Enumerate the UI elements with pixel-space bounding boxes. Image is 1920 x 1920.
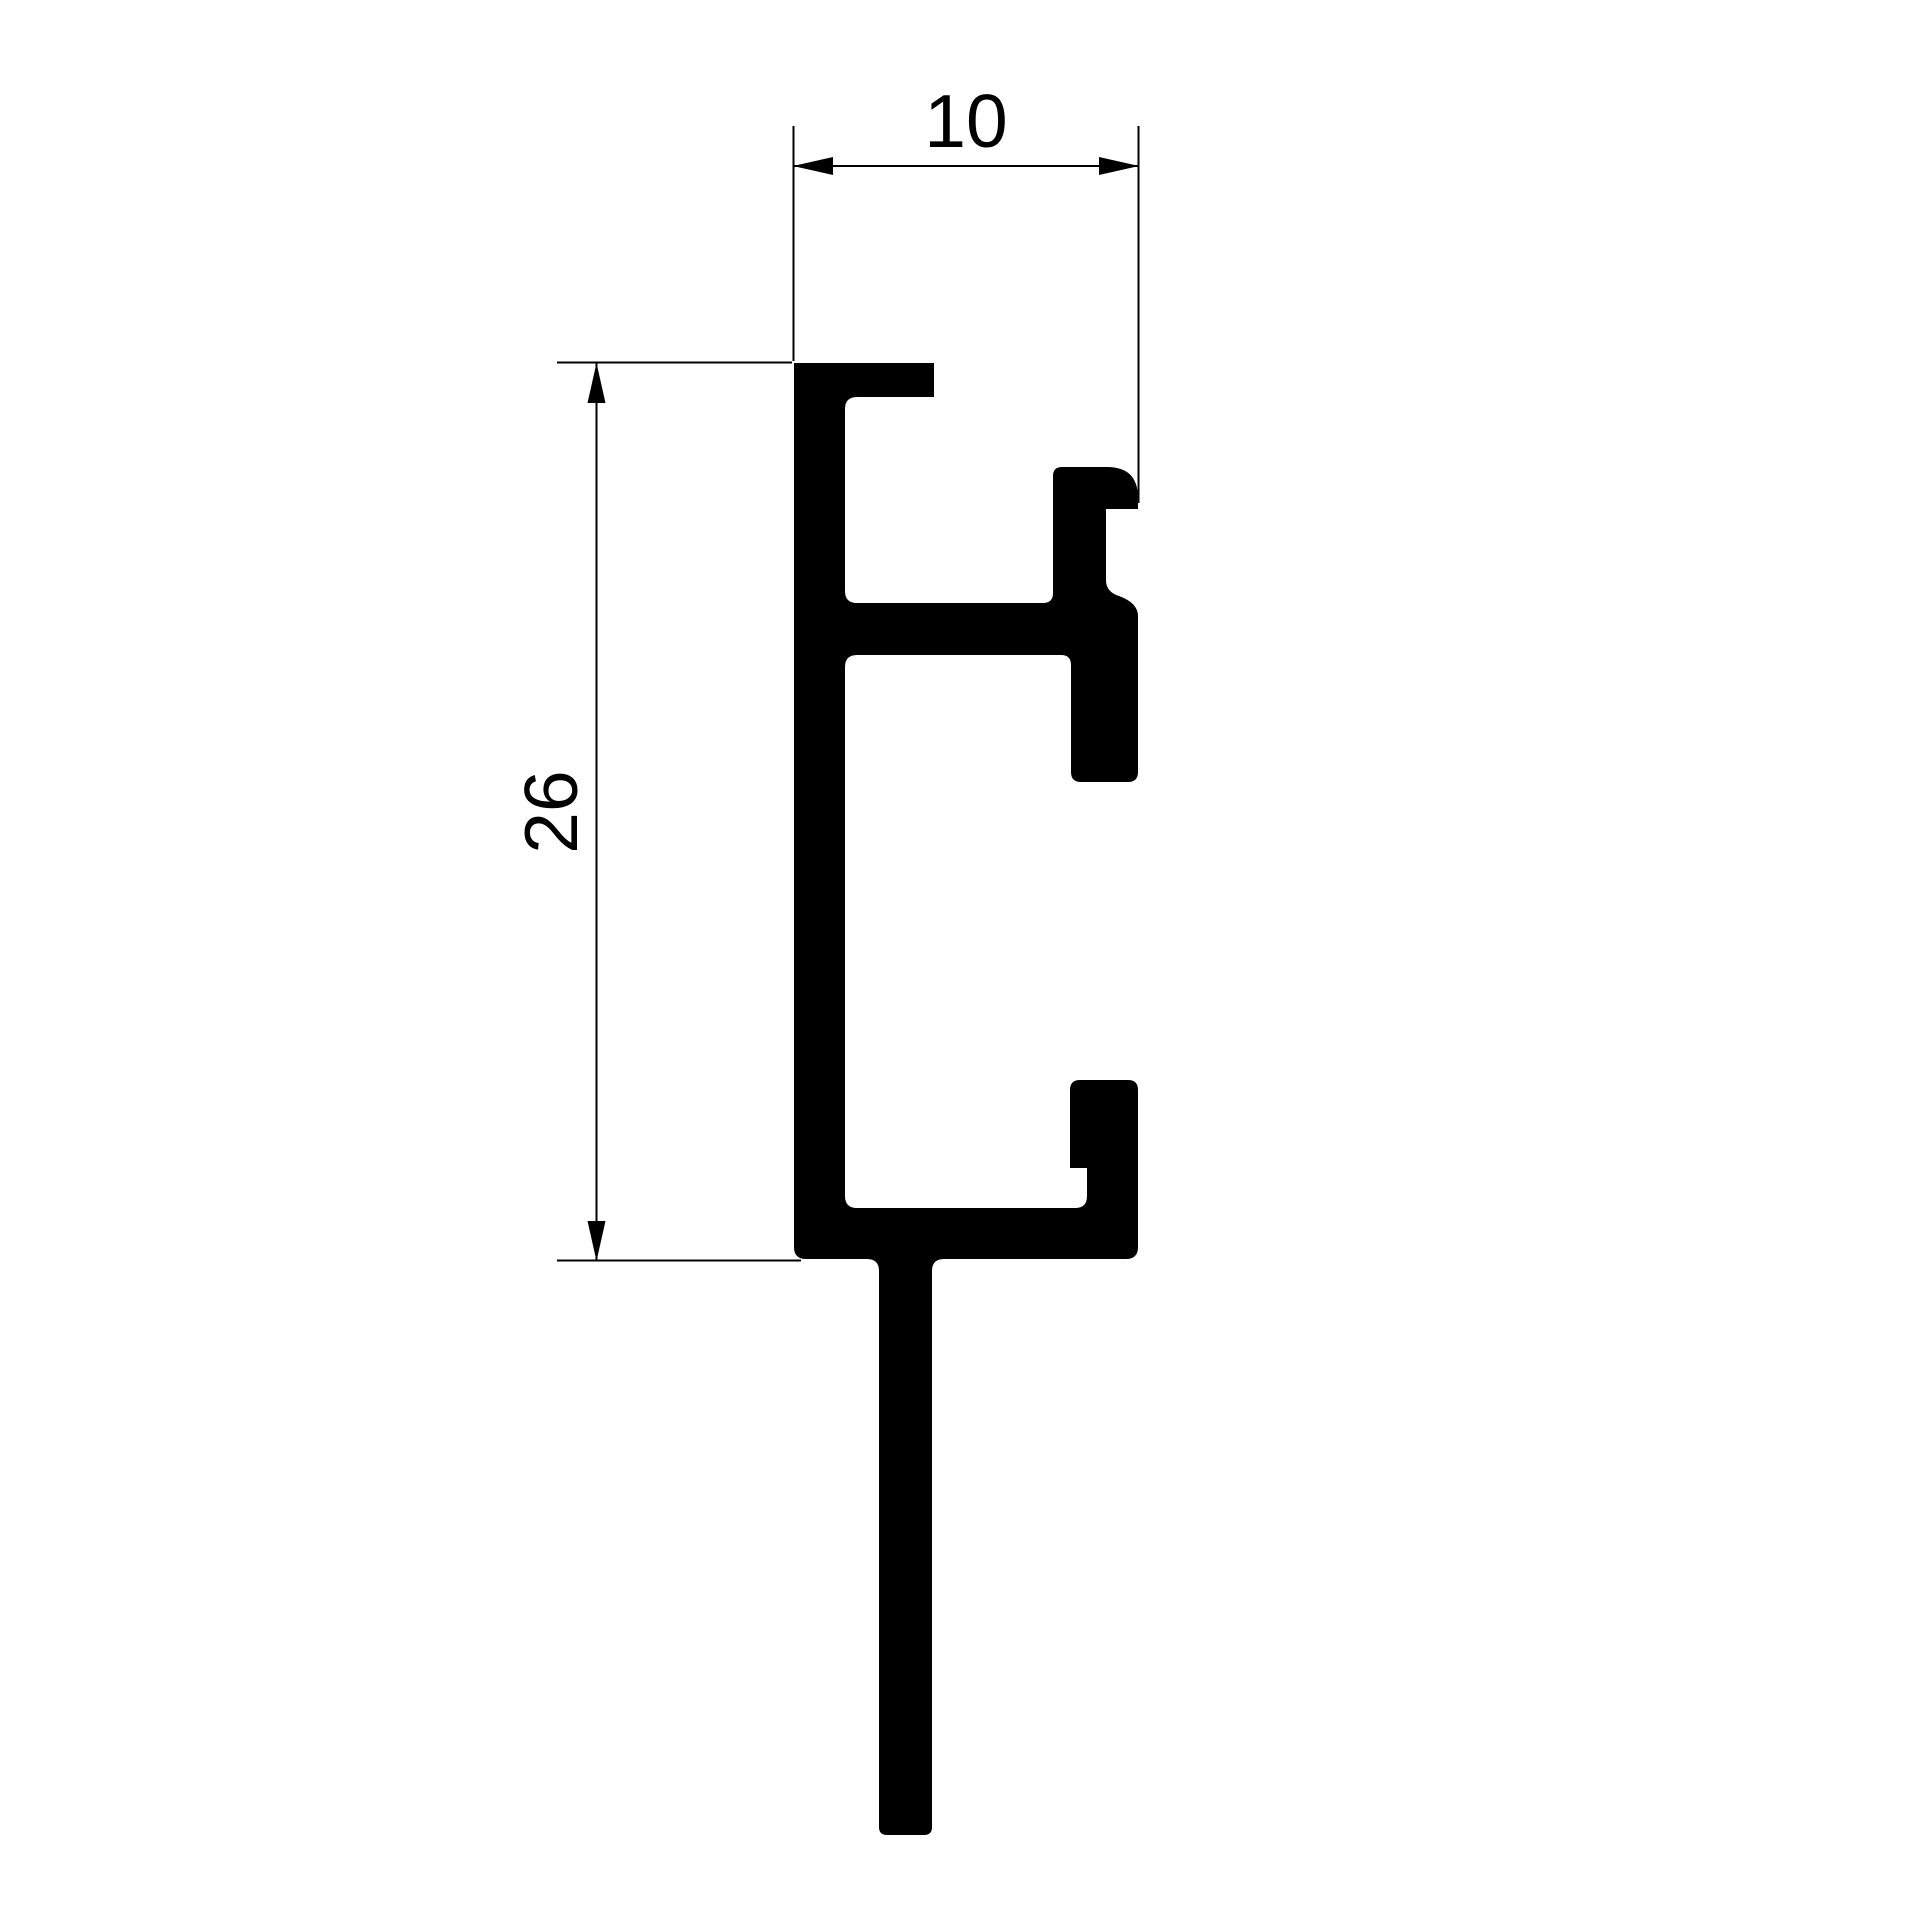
arrowhead-left-icon xyxy=(793,157,833,175)
technical-drawing: 10 26 xyxy=(0,0,1920,1920)
drawing-canvas: 10 26 xyxy=(0,0,1920,1920)
dimension-height: 26 xyxy=(509,363,801,1262)
profile-cross-section xyxy=(794,363,1138,1835)
dimension-label-width: 10 xyxy=(924,79,1007,163)
arrowhead-right-icon xyxy=(1099,157,1139,175)
arrowhead-bottom-icon xyxy=(588,1221,606,1261)
arrowhead-top-icon xyxy=(588,363,606,403)
dimension-label-height: 26 xyxy=(509,770,593,853)
